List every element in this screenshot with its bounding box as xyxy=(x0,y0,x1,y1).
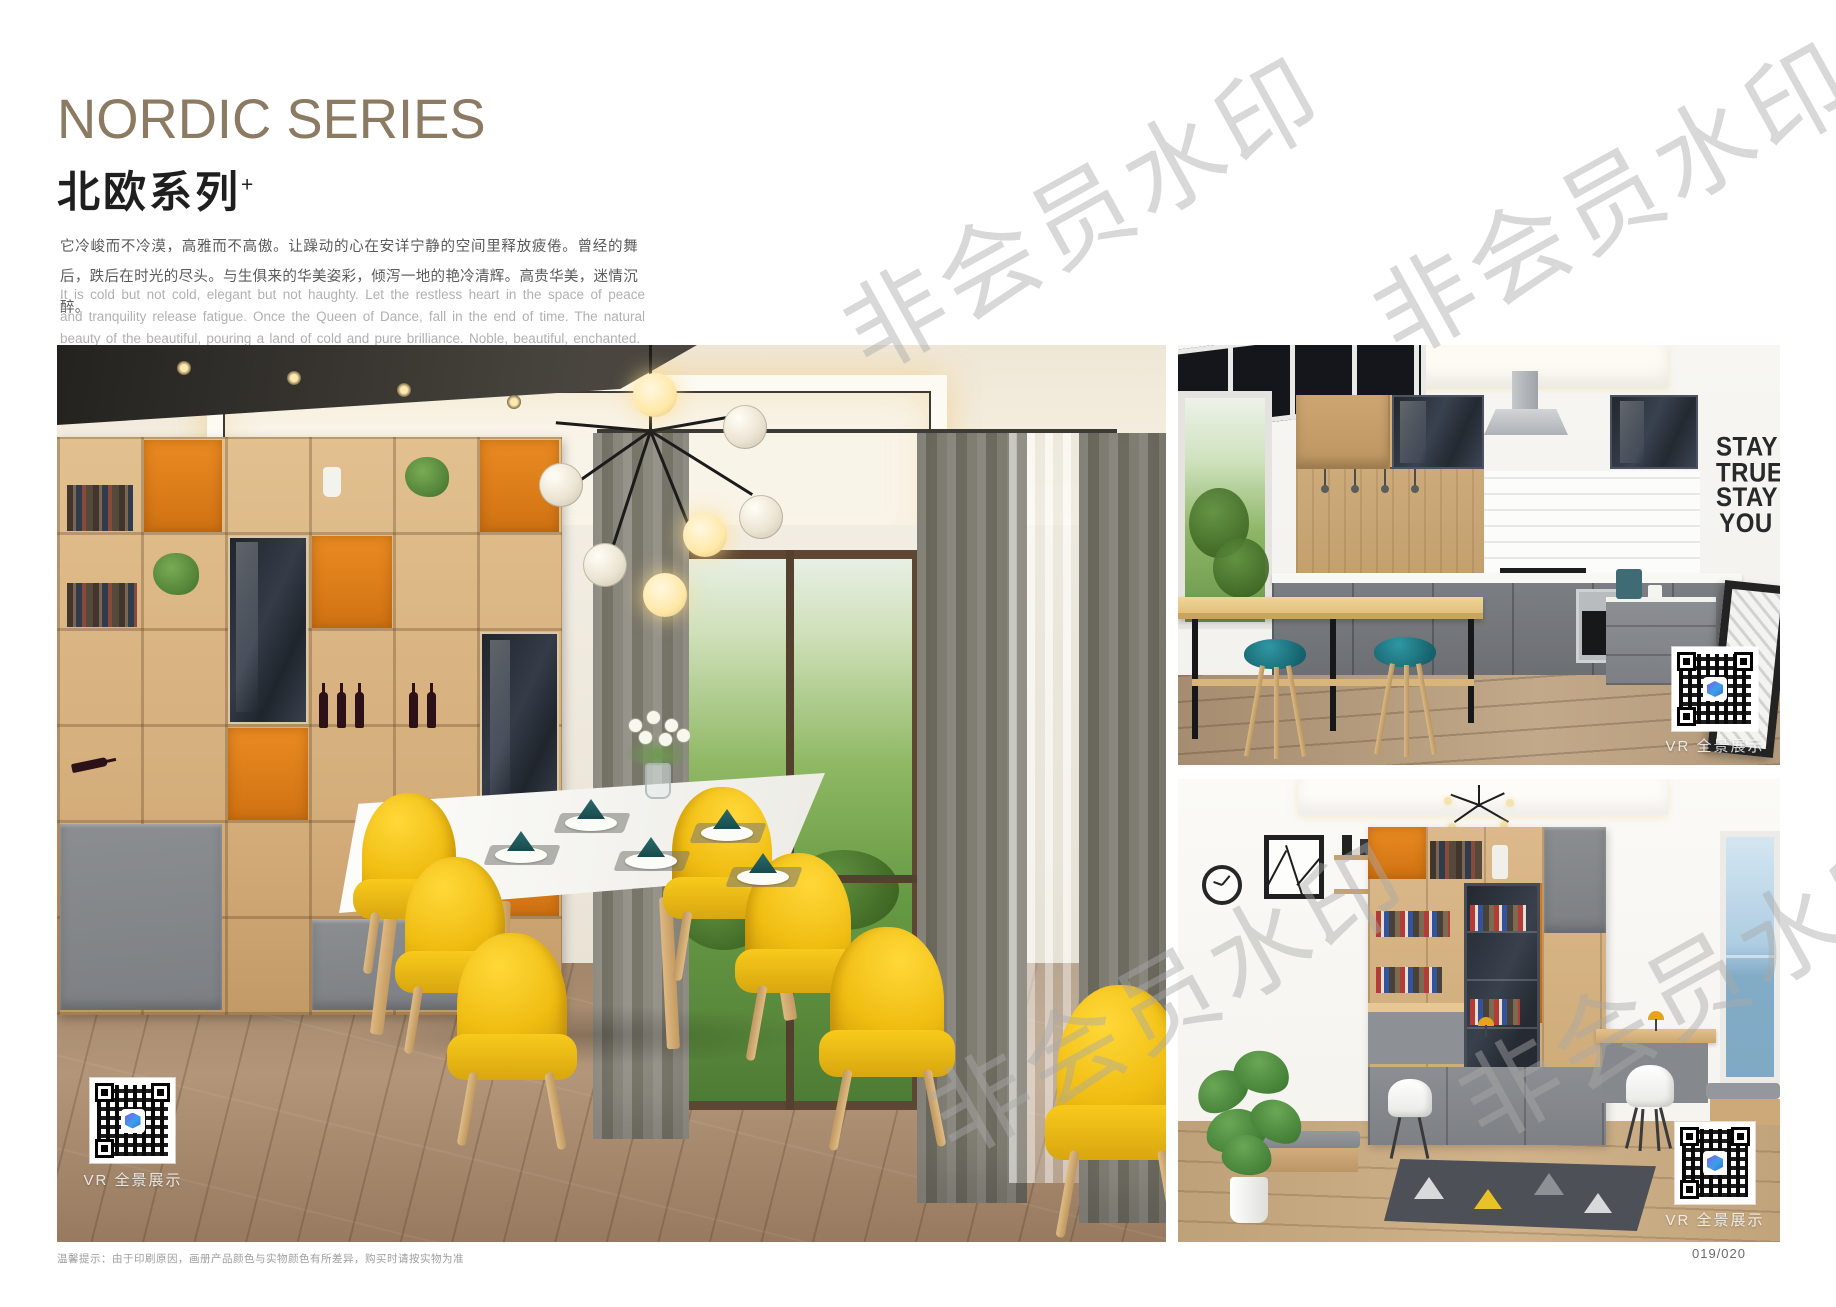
geometric-rug xyxy=(1384,1159,1656,1231)
kitchen-photo: STAY TRUE STAY YOU VR 全景展示 xyxy=(1178,345,1780,765)
upper-cabinet-wood xyxy=(1296,395,1390,469)
subtitle-plus: + xyxy=(241,174,256,197)
tile-backsplash xyxy=(1484,471,1700,575)
page-title: NORDIC SERIES xyxy=(57,86,486,151)
vr-panorama-label: VR 全景展示 xyxy=(1656,1209,1774,1230)
spotlight xyxy=(507,395,521,409)
wine-bottle xyxy=(427,692,436,728)
desk-chair-white xyxy=(1386,1079,1436,1163)
range-hood xyxy=(1484,409,1568,435)
print-disclaimer: 温馨提示：由于印刷原因，画册产品颜色与实物颜色有所差异，购买时请按实物为准 xyxy=(57,1251,464,1266)
hanging-utensil xyxy=(1414,469,1416,487)
flower-vase xyxy=(619,711,699,803)
cup xyxy=(1648,585,1662,599)
qr-logo-cube-icon xyxy=(1703,677,1727,701)
shell-chair-white xyxy=(1624,1065,1676,1157)
books xyxy=(67,485,133,531)
qr-code-study xyxy=(1675,1122,1755,1204)
books xyxy=(67,583,137,627)
wall-art-text: STAY TRUE STAY YOU xyxy=(1716,436,1776,537)
qr-logo-cube-icon xyxy=(1703,1151,1727,1175)
island-counter xyxy=(1178,597,1483,619)
coffee-machine xyxy=(1616,569,1642,599)
books xyxy=(1376,967,1442,993)
potted-plant xyxy=(405,457,449,497)
spotlight xyxy=(397,383,411,397)
dining-chair-yellow xyxy=(1045,985,1166,1235)
island-shelf xyxy=(1192,679,1474,686)
range-hood-chimney xyxy=(1512,371,1538,411)
hanging-utensil xyxy=(1384,469,1386,487)
desk-lamp xyxy=(1478,1017,1504,1037)
unit-cell-orange xyxy=(1368,827,1426,879)
sea-view-window xyxy=(1720,831,1780,1083)
description-english: It is cold but not cold, elegant but not… xyxy=(60,284,645,350)
catalog-page: NORDIC SERIES 北欧系列+ 它冷峻而不冷漠，高雅而不高傲。让躁动的心… xyxy=(0,0,1836,1307)
vr-panorama-label: VR 全景展示 xyxy=(69,1169,197,1190)
desk-top xyxy=(1368,1003,1464,1012)
desk-drawers xyxy=(1368,1012,1464,1064)
wall-art-line: YOU xyxy=(1716,511,1776,536)
qr-code-kitchen xyxy=(1672,647,1758,731)
vase-decor xyxy=(323,467,341,497)
wall-clock xyxy=(1202,865,1242,905)
island-leg xyxy=(1330,619,1336,731)
island-leg xyxy=(1468,619,1474,723)
countertop xyxy=(1272,573,1742,583)
subtitle-text: 北欧系列 xyxy=(57,169,241,217)
books xyxy=(1430,841,1482,879)
dining-chair-yellow xyxy=(447,933,577,1143)
dining-room-photo: VR 全景展示 xyxy=(57,345,1166,1242)
vr-panorama-label: VR 全景展示 xyxy=(1654,735,1776,756)
potted-plant xyxy=(153,553,199,595)
books xyxy=(1376,911,1450,937)
wine-bottle xyxy=(319,692,328,728)
wine-bottle xyxy=(71,757,108,773)
spotlight xyxy=(177,361,191,375)
watermark-text: 非会员水印 xyxy=(1343,1,1836,385)
shelf-cell-orange xyxy=(480,440,559,532)
qr-logo-cube-icon xyxy=(121,1109,145,1133)
wine-bottle xyxy=(409,692,418,728)
deco-vase xyxy=(1492,845,1508,879)
upper-cabinet-glass xyxy=(1392,395,1484,469)
page-subtitle: 北欧系列+ xyxy=(57,158,256,220)
spotlight xyxy=(287,371,301,385)
hanging-utensil xyxy=(1354,469,1356,487)
page-number: 019/020 xyxy=(1692,1246,1746,1261)
wine-bottle xyxy=(355,692,364,728)
hanging-utensil xyxy=(1324,469,1326,487)
upper-cabinet-glass xyxy=(1610,395,1698,469)
qr-code-dining xyxy=(90,1078,175,1163)
wine-bottle xyxy=(337,692,346,728)
shelf-cell-orange xyxy=(144,440,222,532)
window-seat-cushion xyxy=(1706,1083,1780,1099)
desk-lamp xyxy=(1648,1011,1674,1031)
display-cabinet-glass xyxy=(1464,883,1540,1081)
kitchen-window xyxy=(1178,391,1272,629)
shelf-cell-orange xyxy=(228,728,308,820)
abstract-art-frame xyxy=(1264,835,1324,899)
glass-cabinet xyxy=(228,536,308,724)
dining-chair-yellow xyxy=(819,927,955,1142)
gray-cabinet-door xyxy=(60,824,222,1010)
watermark-text: 非会员水印 xyxy=(813,16,1347,400)
side-desk xyxy=(1596,1029,1716,1043)
shelf-cell-orange xyxy=(312,536,392,628)
unit-gray-cabinet xyxy=(1544,827,1606,933)
plant-pot xyxy=(1230,1177,1268,1223)
study-room-photo: VR 全景展示 xyxy=(1178,779,1780,1242)
shelf-vase xyxy=(1342,835,1352,855)
